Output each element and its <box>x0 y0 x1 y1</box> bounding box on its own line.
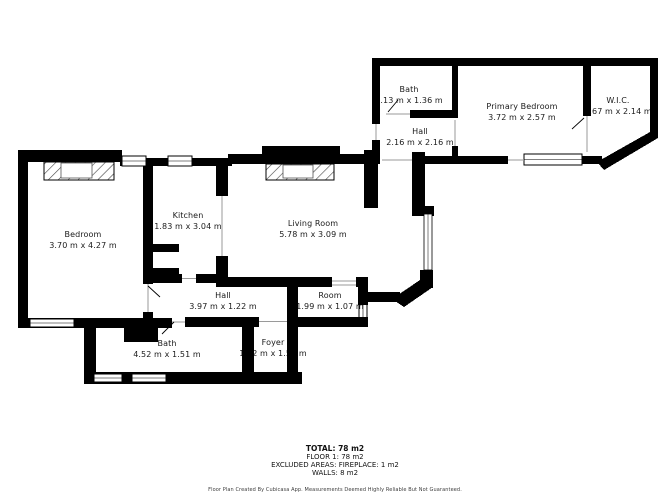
room-label-living-room: Living Room 5.78 m x 3.09 m <box>279 218 347 240</box>
room-name: Hall <box>386 126 454 137</box>
room-dims: 1.13 m x 1.36 m <box>375 95 443 106</box>
summary-total: TOTAL: 78 m2 <box>0 445 670 453</box>
room-name: Bath <box>375 84 443 95</box>
room-name: Living Room <box>279 218 347 229</box>
room-name: Bedroom <box>49 229 117 240</box>
room-label-hall-upper: Hall 2.16 m x 2.16 m <box>386 126 454 148</box>
room-name: Room <box>296 290 364 301</box>
room-dims: 1.83 m x 3.04 m <box>154 221 222 232</box>
room-name: Foyer <box>239 337 307 348</box>
summary-walls: WALLS: 8 m2 <box>0 469 670 477</box>
room-label-primary-bedroom: Primary Bedroom 3.72 m x 2.57 m <box>486 101 557 123</box>
room-name: Bath <box>133 338 201 349</box>
room-dims: 3.97 m x 1.22 m <box>189 301 257 312</box>
room-dims: 4.52 m x 1.51 m <box>133 349 201 360</box>
room-dims: 3.72 m x 2.57 m <box>486 112 557 123</box>
room-dims: 2.16 m x 2.16 m <box>386 137 454 148</box>
room-dims: 1.67 m x 2.14 m <box>584 106 652 117</box>
room-label-hall-lower: Hall 3.97 m x 1.22 m <box>189 290 257 312</box>
room-dims: 5.78 m x 3.09 m <box>279 229 347 240</box>
disclaimer-text: Floor Plan Created By Cubicasa App. Meas… <box>0 487 670 493</box>
summary-floor: FLOOR 1: 78 m2 <box>0 453 670 461</box>
room-label-bath-lower: Bath 4.52 m x 1.51 m <box>133 338 201 360</box>
room-name: Primary Bedroom <box>486 101 557 112</box>
summary-excluded: EXCLUDED AREAS: FIREPLACE: 1 m2 <box>0 461 670 469</box>
room-name: W.I.C. <box>584 95 652 106</box>
room-label-bath-upper: Bath 1.13 m x 1.36 m <box>375 84 443 106</box>
room-label-foyer: Foyer 1.12 m x 1.51 m <box>239 337 307 359</box>
room-labels-layer: Bath 1.13 m x 1.36 m Hall 2.16 m x 2.16 … <box>0 0 670 502</box>
room-label-room: Room 1.99 m x 1.07 m <box>296 290 364 312</box>
summary-block: TOTAL: 78 m2 FLOOR 1: 78 m2 EXCLUDED ARE… <box>0 445 670 477</box>
room-dims: 3.70 m x 4.27 m <box>49 240 117 251</box>
room-dims: 1.99 m x 1.07 m <box>296 301 364 312</box>
room-label-kitchen: Kitchen 1.83 m x 3.04 m <box>154 210 222 232</box>
room-name: Hall <box>189 290 257 301</box>
room-label-wic: W.I.C. 1.67 m x 2.14 m <box>584 95 652 117</box>
floor-plan: Bath 1.13 m x 1.36 m Hall 2.16 m x 2.16 … <box>0 0 670 502</box>
room-label-bedroom: Bedroom 3.70 m x 4.27 m <box>49 229 117 251</box>
room-dims: 1.12 m x 1.51 m <box>239 348 307 359</box>
room-name: Kitchen <box>154 210 222 221</box>
